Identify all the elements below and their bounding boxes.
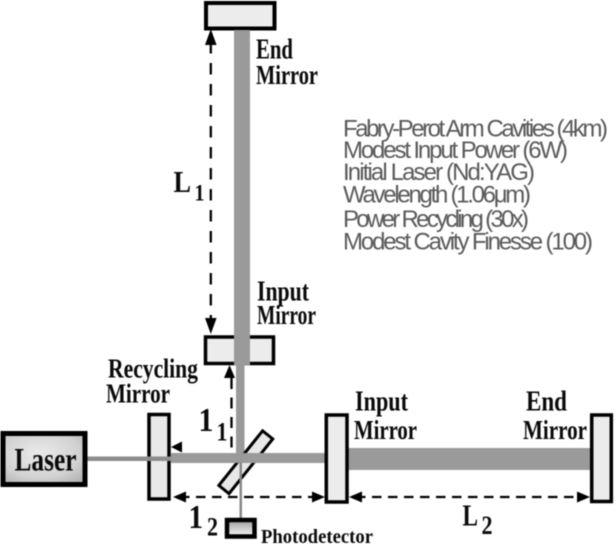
- svg-text:1: 1: [189, 499, 204, 536]
- svg-text:2: 2: [482, 511, 493, 540]
- svg-text:Mirror: Mirror: [257, 300, 316, 330]
- svg-text:Mirror: Mirror: [523, 415, 587, 445]
- svg-text:Modest Cavity Finesse (100): Modest Cavity Finesse (100): [343, 228, 593, 255]
- svg-text:1: 1: [195, 181, 205, 206]
- svg-text:End: End: [526, 387, 567, 418]
- svg-text:Input: Input: [355, 387, 409, 418]
- svg-text:2: 2: [207, 513, 218, 542]
- svg-text:Mirror: Mirror: [256, 60, 318, 90]
- svg-text:Mirror: Mirror: [354, 415, 417, 445]
- svg-text:L: L: [463, 498, 479, 533]
- svg-text:L: L: [174, 164, 192, 199]
- svg-text:Wavelength (1.06μm): Wavelength (1.06μm): [343, 182, 531, 209]
- svg-text:Photodetector: Photodetector: [261, 526, 373, 545]
- svg-text:1: 1: [199, 402, 214, 439]
- svg-text:1: 1: [217, 418, 228, 447]
- svg-text:Mirror: Mirror: [106, 379, 170, 409]
- svg-text:Laser: Laser: [15, 443, 77, 479]
